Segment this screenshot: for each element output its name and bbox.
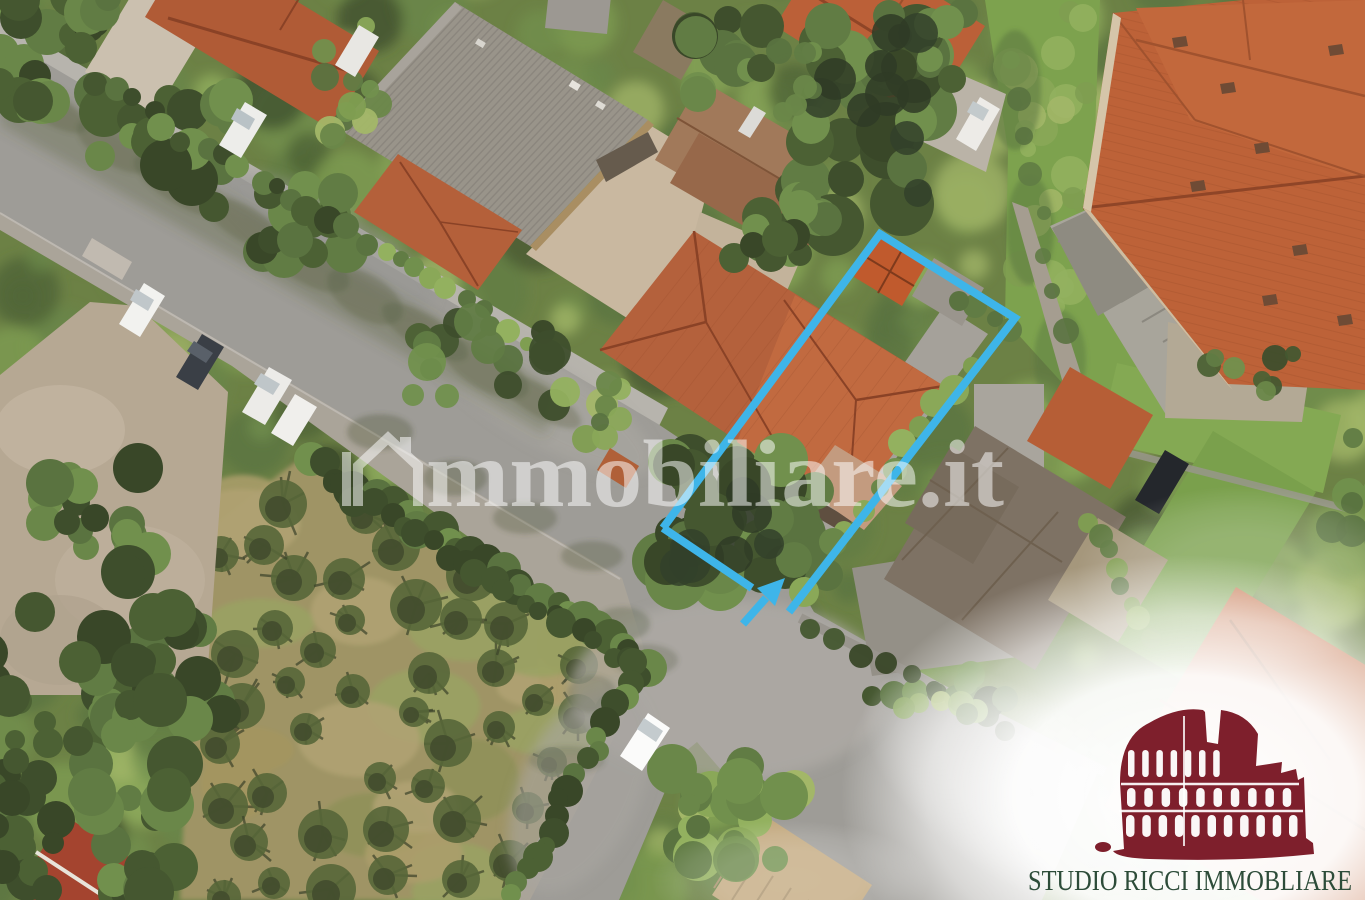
svg-text:mmobiliare.it: mmobiliare.it: [426, 421, 1004, 527]
svg-text:STUDIO RICCI IMMOBLIARE: STUDIO RICCI IMMOBLIARE: [1028, 866, 1352, 897]
